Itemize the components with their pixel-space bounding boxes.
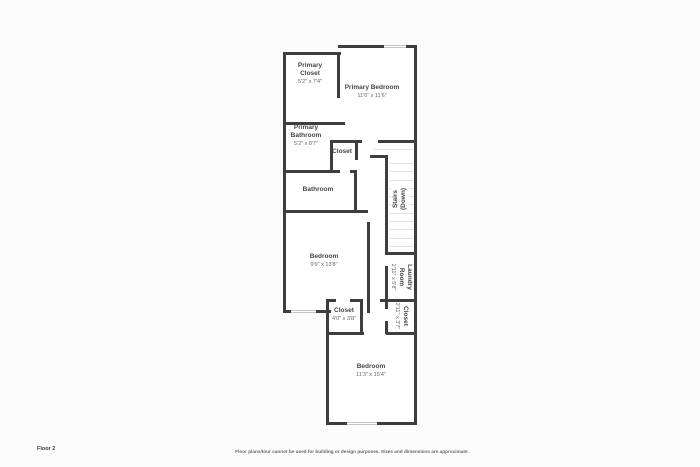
wall-bedroom-lower-top-a xyxy=(326,332,364,335)
stair-step xyxy=(389,221,414,222)
wall-stairs-bottom xyxy=(385,252,417,255)
room-label-bedroom-middle: Bedroom 9'9" x 13'8" xyxy=(310,253,339,269)
room-label-primary-bedroom: Primary Bedroom 11'6" x 11'6" xyxy=(345,84,400,100)
room-name: Primary Bathroom xyxy=(284,124,328,140)
room-label-closet-upper: Closet xyxy=(332,148,352,156)
stair-step xyxy=(389,180,414,181)
wall-closet-center-top-a xyxy=(326,299,336,302)
stair-step xyxy=(389,238,414,239)
wall-closet-hall-left-a xyxy=(385,299,388,309)
room-dims: 5'2" x 7'4" xyxy=(292,79,328,86)
room-sub: (Down) xyxy=(400,188,408,210)
room-name: Primary Bedroom xyxy=(345,84,400,92)
disclaimer-text: Floor plans/tour cannot be used for buil… xyxy=(235,449,469,454)
room-label-laundry: Laundry Room 2'11" x 5'8" xyxy=(389,261,413,293)
room-dims: 2'11" x 5'8" xyxy=(389,261,396,293)
wall-upper-closet-right xyxy=(355,140,358,160)
wall-bedroom-middle-right xyxy=(367,222,370,313)
wall-bedroom-lower-top-b xyxy=(386,332,417,335)
window-primary-bedroom-top xyxy=(384,45,406,48)
wall-closet-center-right xyxy=(360,299,363,334)
room-name: Primary Closet xyxy=(292,62,328,78)
wall-top-primary-closet xyxy=(283,52,341,55)
floor-plan-page: Primary Closet 5'2" x 7'4" Primary Bedro… xyxy=(0,0,700,467)
room-dims: 9'9" x 13'8" xyxy=(310,262,339,269)
room-label-closet-hall: Closet 2'11" x 3'7" xyxy=(393,303,409,330)
wall-left-lower xyxy=(326,299,329,425)
wall-bathroom-right xyxy=(354,170,357,212)
stair-step xyxy=(389,229,414,230)
room-label-closet-center: Closet 4'0" x 3'8" xyxy=(332,307,356,323)
room-name: Bathroom xyxy=(303,186,334,194)
floor-label: Floor 2 xyxy=(37,446,55,452)
room-name: Laundry Room xyxy=(397,261,413,293)
room-name: Bedroom xyxy=(356,363,386,371)
room-label-primary-closet: Primary Closet 5'2" x 7'4" xyxy=(292,62,328,86)
room-name: Stairs xyxy=(392,188,400,210)
window-bedroom-middle-bottom xyxy=(291,310,316,313)
wall-laundry-left xyxy=(385,266,388,299)
wall-right-outer xyxy=(414,45,417,425)
stair-step xyxy=(373,149,413,150)
room-dims: 5'2" x 8'7" xyxy=(284,141,328,148)
room-name: Closet xyxy=(401,303,409,330)
room-label-primary-bathroom: Primary Bathroom 5'2" x 8'7" xyxy=(284,124,328,148)
room-name: Closet xyxy=(332,307,356,315)
room-dims: 11'3" x 15'4" xyxy=(356,372,386,379)
room-name: Bedroom xyxy=(310,253,339,261)
room-dims: 2'11" x 3'7" xyxy=(393,303,400,330)
wall-left-upper xyxy=(283,52,286,313)
wall-stairs-left xyxy=(385,155,388,255)
room-label-bedroom-lower: Bedroom 11'3" x 15'4" xyxy=(356,363,386,379)
room-label-bathroom: Bathroom xyxy=(303,186,334,194)
wall-bedroom-middle-top xyxy=(283,210,368,213)
room-name: Closet xyxy=(332,148,352,156)
stair-step xyxy=(389,246,414,247)
wall-bathroom-top-a xyxy=(283,170,340,173)
room-dims: 11'6" x 11'6" xyxy=(345,93,400,100)
room-label-stairs: Stairs (Down) xyxy=(391,186,409,212)
wall-primary-bedroom-bottom xyxy=(378,140,417,143)
stair-step xyxy=(389,163,414,164)
room-dims: 4'0" x 3'8" xyxy=(332,316,356,323)
window-bedroom-lower-bottom xyxy=(347,422,377,425)
stair-step xyxy=(389,213,414,214)
wall-primary-closet-right xyxy=(337,52,340,98)
stair-step xyxy=(389,171,414,172)
